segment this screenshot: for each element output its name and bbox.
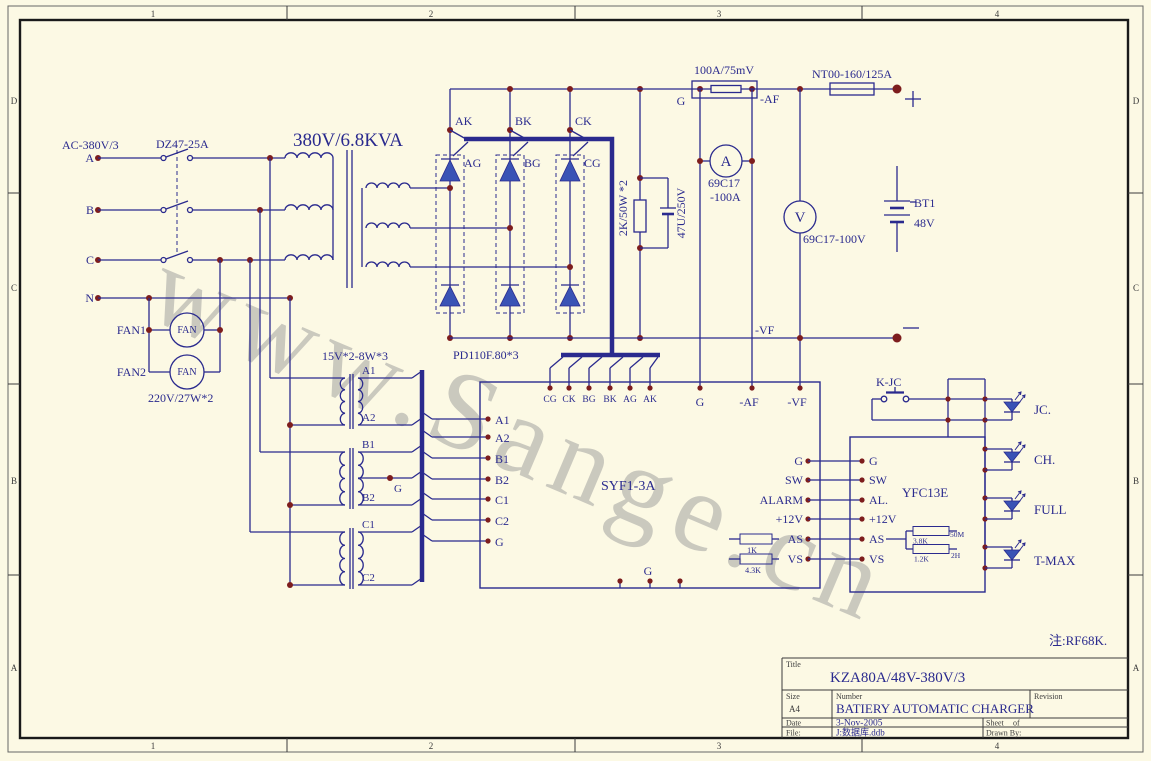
ctrl-pin-c2: C2 [495,514,509,528]
ammeter-range-label: -100A [710,190,741,204]
disp-pin-vs: VS [869,552,884,566]
ctrl-pin-12v: +12V [776,512,804,526]
titleblock-size-label: Size [786,692,800,701]
secondary-coil-a [366,183,410,188]
thyristor-rectifier: AK BK CK AG BG CG PD110F.80*3 [436,86,688,388]
divider-r-bottom-right-label: 2H [951,551,961,560]
dc-fuse-label: NT00-160/125A [812,67,892,81]
ck-label: CK [575,114,592,128]
tap-a2-label: A2 [362,412,375,424]
tap-c2-label: C2 [362,572,375,584]
titleblock-of-label: of [1013,719,1020,728]
phase-a-label: A [85,151,94,165]
pin-ck: CK [562,395,575,405]
titleblock-file: J:数据库.ddb [836,727,885,738]
relay-contact: K-JC [872,375,985,437]
titleblock-sheet-label: Sheet [986,719,1005,728]
titleblock-number: BATIERY AUTOMATIC CHARGER [836,701,1034,716]
led-jc-label: JC. [1034,402,1051,417]
ctrl-pin-c1: C1 [495,493,509,507]
zone-row-d-left: D [11,96,18,106]
schematic-sheet: www.Sange.cn 1 2 3 4 1 2 3 4 D C B A D C… [0,0,1151,761]
cg-label: CG [584,156,601,170]
zone-row-b-right: B [1133,476,1139,486]
display-board-name: YFC13E [902,485,948,500]
ctrl-pin-alarm: ALARM [760,493,804,507]
shunt-af-label: -AF [760,92,780,106]
battery-voltage-label: 48V [914,216,935,230]
ac-input: AC-380V/3 A B C N DZ47-25A [62,137,293,305]
ac-source-label: AC-380V/3 [62,138,119,152]
vf-label: -VF [755,323,775,337]
zone-col-4-top: 4 [995,9,1000,19]
disp-pin-sw: SW [869,473,888,487]
led-ch-label: CH. [1034,452,1055,467]
secondary-coil-b [366,223,410,228]
battery-name-label: BT1 [914,196,935,210]
titleblock-file-label: File: [786,729,801,738]
gate-harness-bus [464,139,612,355]
ctrl-pin-g-left: G [495,535,504,549]
led-tmax: T-MAX [985,540,1076,568]
pin-af-top: -AF [739,395,759,409]
cooling-fans: FAN FAN FAN1 FAN2 220V/27W*2 [117,260,223,405]
dc-fuse-symbol [830,83,874,95]
neutral-label: N [85,291,94,305]
bk-label: BK [515,114,532,128]
harness-drops [550,357,658,388]
snubber: 2K/50W *2 47U/250V [616,86,688,341]
led-full: FULL [985,491,1067,519]
vs-resistor: 4.3K [729,554,779,575]
zone-col-2-bottom: 2 [429,741,434,751]
zone-col-2-top: 2 [429,9,434,19]
vs-resistor-label: 4.3K [745,566,761,575]
titleblock-title-label: Title [786,660,801,669]
ctrl-pin-sw: SW [785,473,804,487]
fan2-text: FAN [177,367,196,378]
controller-to-display-wires [808,461,862,559]
ctrl-pin-g-right: G [794,454,803,468]
bleeder-resistor-label: 2K/50W *2 [616,180,630,236]
shunt-symbol [692,81,757,98]
zone-col-1-bottom: 1 [151,741,156,751]
divider-r-bottom-label: 1.2K [914,555,929,564]
tap-c1-label: C1 [362,519,375,531]
disp-pin-g: G [869,454,878,468]
voltmeter-glyph: V [795,210,806,226]
led-jc: JC. [985,392,1051,420]
title-block: Title KZA80A/48V-380V/3 Size A4 Number B… [782,658,1128,738]
zone-row-d-right: D [1133,96,1140,106]
tap-b2-label: B2 [362,492,375,504]
zone-row-b-left: B [11,476,17,486]
fan1-text: FAN [177,325,196,336]
titleblock-number-label: Number [836,692,863,701]
shunt-g-label: G [677,94,686,108]
primary-coil-b [285,205,333,210]
pin-bk: BK [603,395,616,405]
ammeter-type-label: 69C17 [708,176,740,190]
zone-row-c-right: C [1133,283,1139,293]
fan-power-label: 220V/27W*2 [148,391,213,405]
pin-ak: AK [643,395,657,405]
relay-label: K-JC [876,375,901,389]
zone-col-3-top: 3 [717,9,722,19]
aux-transformers: 15V*2-8W*3 [250,158,488,589]
aux-secondary-taps [358,371,422,585]
zone-col-3-bottom: 3 [717,741,722,751]
zone-col-1-top: 1 [151,9,156,19]
dc-bus: 100A/75mV G -AF NT00-160/125A A 69C17 -1… [450,63,935,388]
aux-transformer-t3 [340,528,363,589]
secondary-coil-c [366,262,410,267]
led-tmax-label: T-MAX [1034,553,1076,568]
aux-transformer-t1 [340,374,363,429]
fan1-label: FAN1 [117,323,146,337]
ctrl-pin-a1: A1 [495,413,510,427]
pin-ag: AG [623,395,637,405]
phase-b-label: B [86,203,94,217]
ak-label: AK [455,114,473,128]
titleblock-drawn-label: Drawn By: [986,729,1021,738]
titleblock-date-label: Date [786,719,802,728]
led-ch: CH. [985,442,1055,470]
voltmeter-type-label: 69C17-100V [803,232,866,246]
zone-col-4-bottom: 4 [995,741,1000,751]
titleblock-revision-label: Revision [1034,692,1062,701]
disp-pin-12v: +12V [869,512,897,526]
primary-coil-c [285,255,333,260]
primary-coil-a [285,153,333,158]
bleeder-resistor-symbol [634,200,646,232]
ag-label: AG [464,156,482,170]
tap-g-label: G [394,483,402,495]
ammeter-glyph: A [721,154,732,170]
disp-pin-as: AS [869,532,884,546]
titleblock-title: KZA80A/48V-380V/3 [830,670,965,686]
battery-symbol: BT1 48V [884,166,935,252]
phase-c-label: C [86,253,94,267]
divider-network: 3.8K 50M 1.2K 2H [886,527,965,564]
fan2-label: FAN2 [117,365,146,379]
as-resistor: 1K [729,534,779,555]
zone-row-a-right: A [1133,663,1140,673]
divider-r-top-right-label: 50M [950,530,965,539]
aux-transformer-label: 15V*2-8W*3 [322,349,388,363]
ctrl-pin-b1: B1 [495,452,509,466]
ctrl-pin-a2: A2 [495,431,510,445]
aux-harness-exits [422,412,488,541]
zone-row-a-left: A [11,663,18,673]
controller-block: SYF1-3A CG CK BG BK AG AK G -AF -VF A1 A… [480,382,862,588]
zone-row-c-left: C [11,283,17,293]
breaker-label: DZ47-25A [156,137,209,151]
tap-a1-label: A1 [362,365,375,377]
ctrl-pin-vs: VS [788,552,803,566]
titleblock-size: A4 [789,704,800,714]
main-transformer-label: 380V/6.8KVA [293,130,403,151]
note-text: 注:RF68K. [1049,633,1107,648]
pin-cg: CG [543,395,556,405]
negative-terminal [893,334,902,343]
pin-vf-top: -VF [787,395,807,409]
ctrl-pin-as: AS [788,532,803,546]
breaker-symbol [98,149,285,263]
led-full-label: FULL [1034,502,1067,517]
controller-name: SYF1-3A [601,479,656,494]
display-board: YFC13E G SW AL. +12V AS VS 3.8K 50M 1.2K [850,375,1076,592]
filter-cap-label: 47U/250V [674,187,688,238]
positive-terminal [893,85,902,94]
divider-r-top-label: 3.8K [913,537,928,546]
pin-bg: BG [582,395,595,405]
main-transformer: 380V/6.8KVA [285,130,570,288]
ctrl-pin-g-bottom: G [644,564,653,578]
bg-label: BG [524,156,541,170]
pin-g-top: G [696,395,705,409]
ctrl-pin-b2: B2 [495,473,509,487]
rectifier-module-label: PD110F.80*3 [453,348,519,362]
shunt-label: 100A/75mV [694,63,754,77]
tap-b1-label: B1 [362,439,375,451]
schematic-canvas: 1 2 3 4 1 2 3 4 D C B A D C B A AC-380V/… [0,0,1151,761]
disp-pin-al: AL. [869,493,888,507]
